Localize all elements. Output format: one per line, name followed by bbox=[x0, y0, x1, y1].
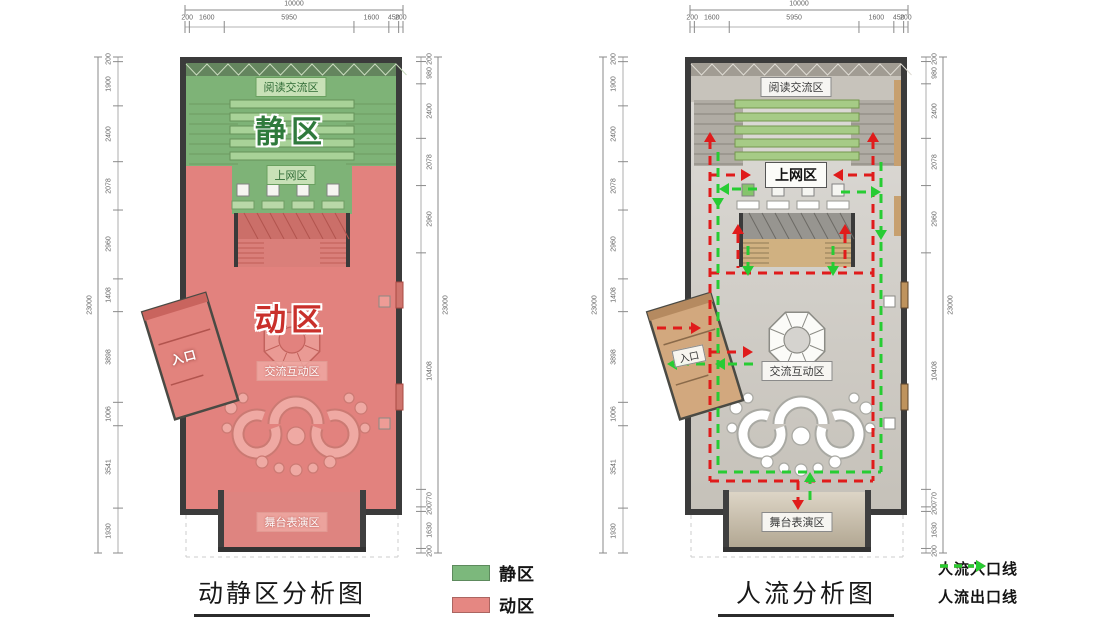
dim-label: 1600 bbox=[869, 15, 885, 22]
dim-label: 1630 bbox=[932, 522, 939, 538]
dim-label: 980 bbox=[932, 67, 939, 79]
dim-label: 200 bbox=[932, 503, 939, 515]
label-active-zone: 动区 bbox=[255, 295, 327, 340]
flow-legend: 人流入口线人流出口线 bbox=[938, 558, 1018, 607]
dim-label: 2400 bbox=[932, 103, 939, 119]
dim-label: 1630 bbox=[427, 522, 434, 538]
dim-label: 1930 bbox=[611, 523, 618, 539]
legend-flow-item: 人流出口线 bbox=[938, 586, 1018, 607]
dim-label: 3898 bbox=[611, 349, 618, 365]
legend-swatch bbox=[452, 565, 490, 581]
dim-label: 5950 bbox=[786, 15, 802, 22]
dim-label: 200 bbox=[611, 53, 618, 65]
legend-zone-label: 静区 bbox=[499, 560, 535, 585]
dim-label: 2400 bbox=[427, 103, 434, 119]
dim-label: 200 bbox=[427, 503, 434, 515]
dim-label: 2960 bbox=[106, 237, 113, 253]
label-interact-area-right: 交流互动区 bbox=[762, 361, 833, 381]
dim-label: 2400 bbox=[611, 126, 618, 142]
dim-label: 2078 bbox=[611, 178, 618, 194]
dim-label: 1006 bbox=[106, 406, 113, 422]
dim-label: 200 bbox=[106, 53, 113, 65]
dim-label: 23000 bbox=[948, 295, 955, 314]
left-plan-title: 动静区分析图 bbox=[182, 574, 382, 620]
legend-flow-label: 人流出口线 bbox=[938, 586, 1018, 607]
dim-label: 23000 bbox=[443, 295, 450, 314]
right-plan-title: 人流分析图 bbox=[706, 574, 906, 620]
dim-label: 10408 bbox=[932, 361, 939, 380]
dim-label: 1408 bbox=[106, 287, 113, 303]
label-quiet-zone: 静区 bbox=[255, 107, 327, 152]
label-interact-area-left: 交流互动区 bbox=[257, 361, 328, 381]
dim-label: 1930 bbox=[106, 523, 113, 539]
dim-label: 1600 bbox=[704, 15, 720, 22]
title-underline bbox=[718, 614, 894, 620]
dim-label: 2078 bbox=[932, 154, 939, 170]
label-stage-area-left: 舞台表演区 bbox=[257, 512, 328, 532]
dim-label: 2078 bbox=[106, 178, 113, 194]
dim-label: 2960 bbox=[427, 211, 434, 227]
label-reading-area-right: 阅读交流区 bbox=[761, 77, 832, 97]
dim-label: 200 bbox=[395, 15, 407, 22]
dim-label: 2960 bbox=[611, 237, 618, 253]
title-underline bbox=[194, 614, 370, 620]
dim-label: 1600 bbox=[364, 15, 380, 22]
legend-zone-label: 动区 bbox=[499, 592, 535, 617]
dim-label: 10408 bbox=[427, 361, 434, 380]
dim-label: 1408 bbox=[611, 287, 618, 303]
dim-label: 10000 bbox=[789, 1, 808, 8]
dim-label: 2078 bbox=[427, 154, 434, 170]
dim-label: 980 bbox=[427, 67, 434, 79]
dim-label: 200 bbox=[932, 545, 939, 557]
dim-label: 2960 bbox=[932, 211, 939, 227]
dim-label: 1900 bbox=[611, 76, 618, 92]
dim-label: 3541 bbox=[611, 459, 618, 475]
drawing-canvas: 阅读交流区 静区 上网区 动区 交流互动区 舞台表演区 入口 阅读交流区 上网区… bbox=[0, 0, 1100, 620]
dim-label: 200 bbox=[932, 53, 939, 65]
label-stage-area-right: 舞台表演区 bbox=[762, 512, 833, 532]
legend-swatch bbox=[452, 597, 490, 613]
dim-label: 23000 bbox=[87, 295, 94, 314]
label-internet-area-left: 上网区 bbox=[267, 165, 316, 185]
legend-zone-item: 静区 bbox=[452, 560, 535, 585]
dim-label: 200 bbox=[427, 545, 434, 557]
zone-legend: 静区动区 bbox=[452, 560, 535, 617]
dim-label: 1900 bbox=[106, 76, 113, 92]
label-internet-area-right: 上网区 bbox=[765, 162, 827, 188]
dim-label: 1006 bbox=[611, 406, 618, 422]
dim-label: 23000 bbox=[592, 295, 599, 314]
left-plan-title-text: 动静区分析图 bbox=[198, 580, 366, 608]
dim-label: 200 bbox=[427, 53, 434, 65]
dashed-arrow-icon bbox=[938, 558, 988, 574]
dim-label: 3898 bbox=[106, 349, 113, 365]
dim-label: 200 bbox=[181, 15, 193, 22]
dim-label: 5950 bbox=[281, 15, 297, 22]
dim-label: 200 bbox=[686, 15, 698, 22]
legend-zone-item: 动区 bbox=[452, 592, 535, 617]
dim-label: 200 bbox=[900, 15, 912, 22]
dim-label: 10000 bbox=[284, 1, 303, 8]
dim-label: 1600 bbox=[199, 15, 215, 22]
dim-label: 2400 bbox=[106, 126, 113, 142]
right-plan-title-text: 人流分析图 bbox=[736, 580, 876, 608]
label-reading-area-left: 阅读交流区 bbox=[256, 77, 327, 97]
dim-label: 3541 bbox=[106, 459, 113, 475]
